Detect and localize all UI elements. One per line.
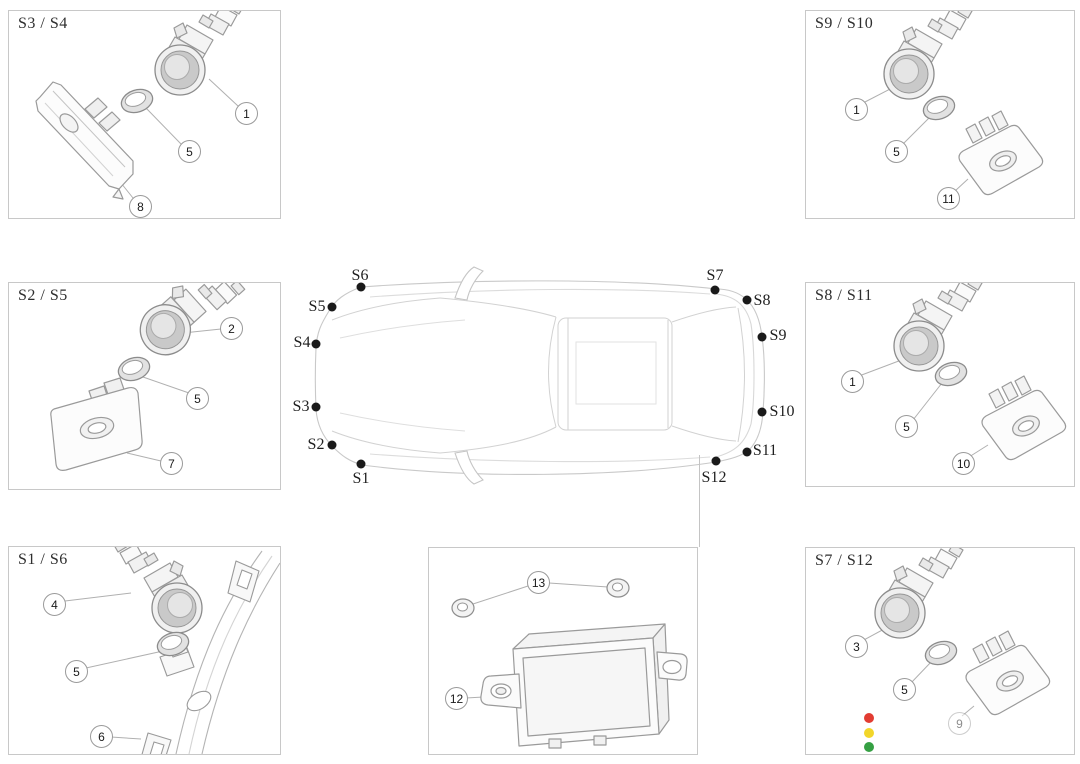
- control-module-drawing: [481, 624, 687, 748]
- panel-title: S1 / S6: [18, 551, 68, 569]
- panel-title: S8 / S11: [815, 287, 873, 305]
- legend-dot-red: [864, 713, 874, 723]
- callout-bracket: 10: [952, 452, 975, 475]
- sensor-label-s6: S6: [342, 267, 378, 285]
- callout-bracket: 7: [160, 452, 183, 475]
- callout-bracket: 9: [948, 712, 971, 735]
- sensor-label-s8: S8: [744, 292, 780, 310]
- callout-grommet: 5: [178, 140, 201, 163]
- callout-sensor: 3: [845, 635, 868, 658]
- legend-dot-yellow: [864, 728, 874, 738]
- sensor-drawing: [884, 11, 972, 99]
- sensor-label-s7: S7: [697, 267, 733, 285]
- exploded-parts-drawing: [9, 547, 280, 754]
- sensor-label-s9: S9: [760, 327, 796, 345]
- grommet-drawing: [922, 638, 959, 669]
- panel-title: S9 / S10: [815, 15, 873, 33]
- bracket-drawing: [982, 376, 1066, 460]
- grommet-drawing: [920, 93, 957, 124]
- legend-dot-green: [864, 742, 874, 752]
- sensor-label-s3: S3: [283, 398, 319, 416]
- sensor-drawing: [114, 547, 202, 633]
- sensor-label-s5: S5: [299, 298, 335, 316]
- nut-drawing: [452, 599, 474, 617]
- sensor-drawing: [875, 548, 963, 638]
- callout-bumper: 6: [90, 725, 113, 748]
- sensor-drawing: [894, 283, 982, 371]
- sensor-label-s10: S10: [764, 403, 800, 421]
- callout-grommet: 5: [895, 415, 918, 438]
- panel-s9-s10: S9 / S10 1 5 11: [805, 10, 1075, 219]
- callout-module: 12: [445, 687, 468, 710]
- mount-plate-drawing: [51, 378, 142, 470]
- callout-sensor: 1: [845, 98, 868, 121]
- car-top-view: [290, 258, 800, 494]
- panel-s2-s5: S2 / S5 2 5 7: [8, 282, 281, 490]
- panel-s1-s6: S1 / S6 4 5 6: [8, 546, 281, 755]
- car-interior-lines: [332, 298, 745, 453]
- panel-control-module: 13 12: [428, 547, 698, 755]
- callout-grommet: 5: [885, 140, 908, 163]
- panel-s8-s11: S8 / S11 1 5 10: [805, 282, 1075, 487]
- sensor-dot-s12: [712, 457, 721, 466]
- sensor-label-s1: S1: [343, 470, 379, 488]
- bracket-drawing: [959, 111, 1043, 195]
- callout-sensor: 1: [841, 370, 864, 393]
- exploded-parts-drawing: [429, 548, 697, 754]
- callout-grommet: 5: [893, 678, 916, 701]
- bracket-drawing: [966, 631, 1050, 715]
- sensor-dot-s7: [711, 286, 720, 295]
- sensor-label-s12: S12: [696, 469, 732, 487]
- sill-bracket-drawing: [36, 82, 133, 199]
- sensor-dot-s1: [357, 460, 366, 469]
- sensor-label-s11: S11: [747, 442, 783, 460]
- callout-nut: 13: [527, 571, 550, 594]
- callout-sensor: 4: [43, 593, 66, 616]
- callout-bracket: 8: [129, 195, 152, 218]
- panel-title: S7 / S12: [815, 552, 873, 570]
- nut-drawing: [607, 579, 629, 597]
- exploded-parts-drawing: [9, 283, 280, 489]
- sensor-drawing: [155, 11, 243, 95]
- callout-bracket: 11: [937, 187, 960, 210]
- panel-s7-s12: S7 / S12 3 5 9: [805, 547, 1075, 755]
- callout-sensor: 2: [220, 317, 243, 340]
- panel-s3-s4: S3 / S4 1 5 8: [8, 10, 281, 219]
- callout-grommet: 5: [186, 387, 209, 410]
- sensor-label-s4: S4: [284, 334, 320, 352]
- callout-grommet: 5: [65, 660, 88, 683]
- parking-sensor-parts-diagram: S3 / S4 1 5 8 S9 / S10 1 5 11: [0, 0, 1080, 764]
- panel-title: S3 / S4: [18, 15, 68, 33]
- callout-sensor: 1: [235, 102, 258, 125]
- sensor-label-s2: S2: [298, 436, 334, 454]
- panel-title: S2 / S5: [18, 287, 68, 305]
